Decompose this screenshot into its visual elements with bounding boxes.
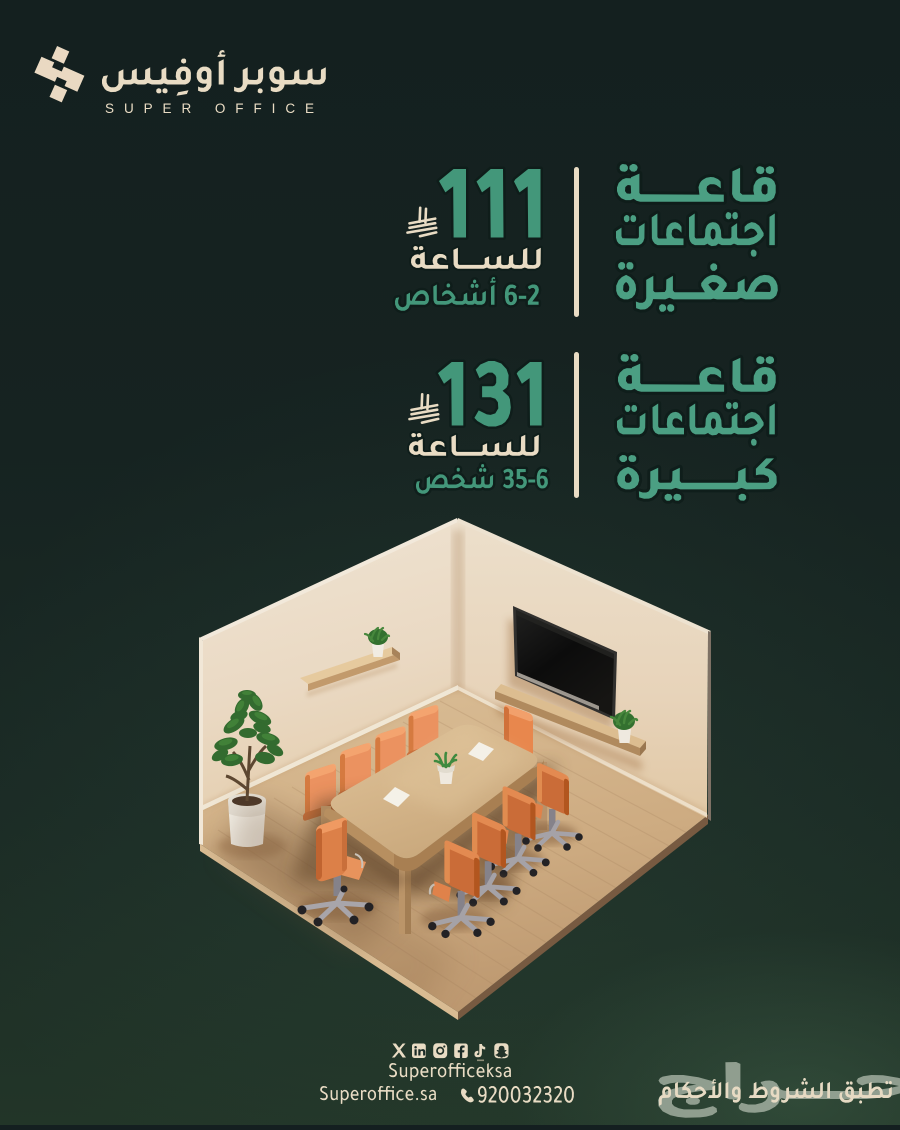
svg-text:SUPER OFFICE: SUPER OFFICE (105, 101, 323, 116)
